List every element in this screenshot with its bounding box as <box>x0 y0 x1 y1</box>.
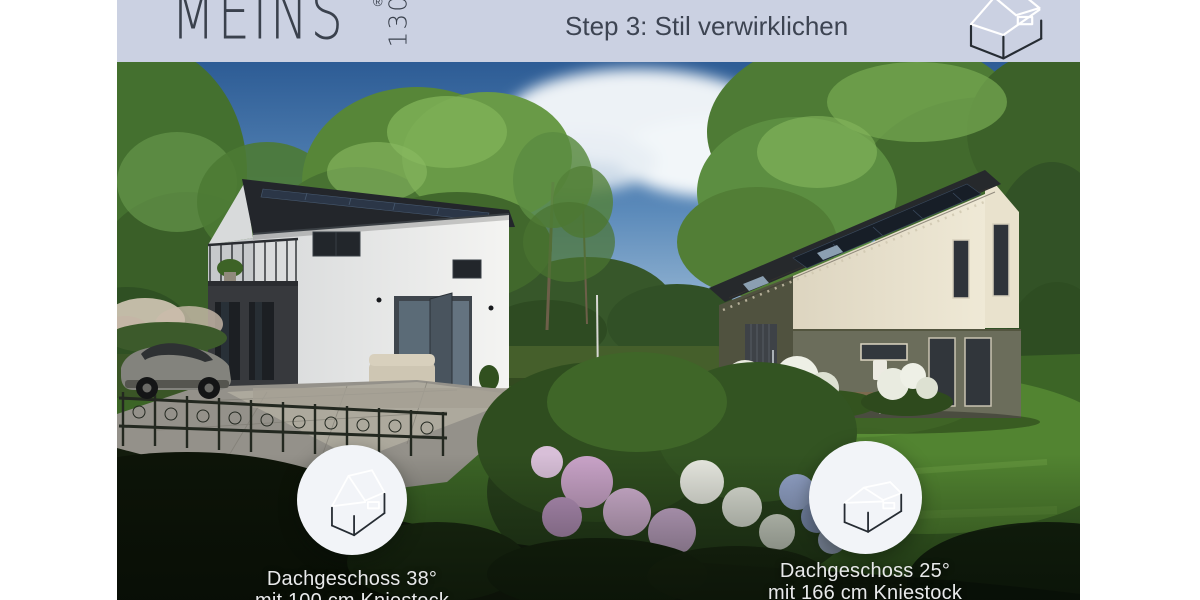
garden-scene-illustration <box>117 62 1080 600</box>
caption-line-2: mit 166 cm Kniestock <box>705 582 1025 600</box>
style-option-roof-38-caption[interactable]: Dachgeschoss 38° mit 100 cm Kniestock <box>192 568 512 600</box>
brand-logo-text: MEINS <box>171 0 345 54</box>
house-shallow-roof-icon <box>828 460 904 536</box>
isometric-house-outline-icon <box>962 0 1052 63</box>
content-area: MEINS ® 130 Step 3: Stil verwirklichen <box>117 0 1080 600</box>
left-house-illustration <box>208 179 515 399</box>
caption-line-2: mit 100 cm Kniestock <box>192 590 512 600</box>
step-title: Step 3: Stil verwirklichen <box>565 11 848 42</box>
caption-line-1: Dachgeschoss 38° <box>192 568 512 590</box>
caption-line-1: Dachgeschoss 25° <box>705 560 1025 582</box>
registered-mark: ® <box>373 0 383 9</box>
style-option-roof-25-button[interactable] <box>809 441 922 554</box>
style-option-roof-38-button[interactable] <box>297 445 407 555</box>
configurator-window: MEINS ® 130 Step 3: Stil verwirklichen <box>0 0 1200 600</box>
header: MEINS ® 130 Step 3: Stil verwirklichen <box>117 0 1080 63</box>
style-option-roof-25-caption[interactable]: Dachgeschoss 25° mit 166 cm Kniestock <box>705 560 1025 600</box>
model-number: 130 <box>384 2 413 48</box>
house-steep-roof-icon <box>314 462 390 538</box>
house-style-preview-image: Dachgeschoss 38° mit 100 cm Kniestock Da… <box>117 62 1080 600</box>
